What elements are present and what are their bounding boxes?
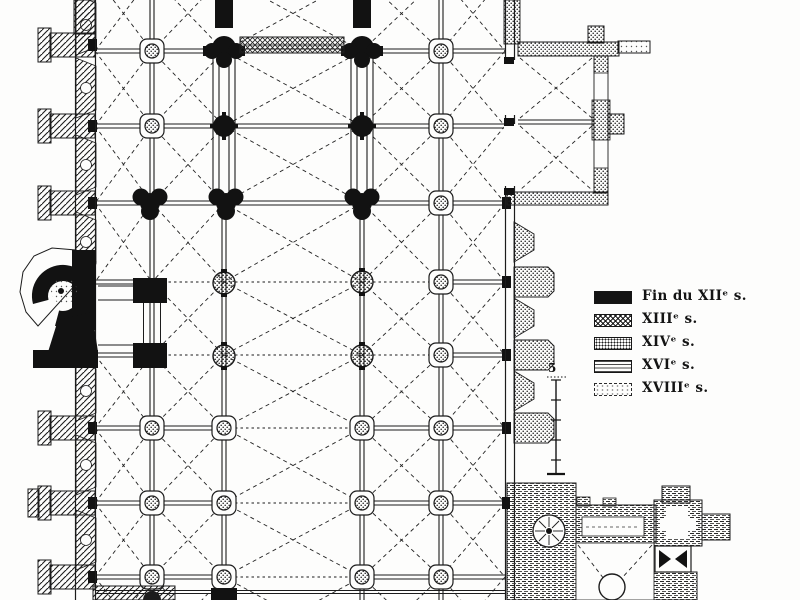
column-round [140, 39, 164, 63]
choir-screen [240, 37, 344, 53]
sacristy-complex [502, 483, 730, 600]
legend-swatch-end-12th-century [594, 291, 632, 304]
legend-swatch-14th-century [594, 337, 632, 350]
pier-trefoil [133, 189, 168, 221]
crossing-pier [203, 0, 245, 68]
turret-connector [48, 312, 98, 352]
legend-label: XVIᵉ s. [642, 359, 695, 372]
column-round [429, 343, 453, 367]
wall-respond [514, 298, 534, 338]
pier-square [133, 278, 167, 303]
column-round [350, 491, 374, 515]
right-buttress [514, 413, 554, 443]
column-round [429, 191, 453, 215]
chapel-north-arm [618, 41, 650, 53]
pier-square [133, 343, 167, 368]
turret-foot [33, 350, 98, 368]
column-hatched [351, 268, 373, 296]
column-round [212, 416, 236, 440]
column-hatched [351, 342, 373, 370]
side-chapel [504, 26, 650, 205]
legend-label: XVIIIᵉ s. [642, 382, 709, 395]
spiral-staircase [533, 515, 565, 547]
column-round [212, 491, 236, 515]
legend-label: XIIIᵉ s. [642, 313, 698, 326]
legend-swatch-13th-century [594, 314, 632, 327]
construction-period-legend: Fin du XIIᵉ s.XIIIᵉ s.XIVᵉ s.XVIᵉ s.XVII… [594, 291, 747, 406]
chapel-north-buttress [588, 26, 604, 43]
legend-label: XIVᵉ s. [642, 336, 695, 349]
right-wall-top-cap [504, 0, 520, 44]
chapel-south-wall [507, 192, 608, 205]
wall-respond [514, 371, 534, 411]
legend-item: XVIᵉ s. [594, 360, 747, 373]
column-round [212, 565, 236, 589]
column-round [429, 565, 453, 589]
column-round [429, 270, 453, 294]
legend-item: Fin du XIIᵉ s. [594, 291, 747, 304]
legend-item: XIIIᵉ s. [594, 314, 747, 327]
scanned-floor-plan-page: Fin du XIIᵉ s.XIIIᵉ s.XIVᵉ s.XVIᵉ s.XVII… [0, 0, 800, 600]
column-round [429, 114, 453, 138]
wall-respond [514, 222, 534, 262]
legend-swatch-16th-century [594, 360, 632, 373]
chapel-west-opening [504, 124, 516, 186]
sacristy-vaulted-room [576, 543, 654, 600]
scale-bar-label: 5 [548, 361, 556, 375]
column-hatched [213, 342, 235, 370]
pier-black-round [348, 112, 376, 140]
column-round [140, 491, 164, 515]
column-round [429, 416, 453, 440]
east-chapel-cross [654, 486, 730, 546]
column-round [350, 416, 374, 440]
column-round [140, 114, 164, 138]
sacristy-tower [653, 572, 697, 600]
column-round [429, 491, 453, 515]
column-round [429, 39, 453, 63]
right-buttress [514, 267, 554, 297]
legend-label: Fin du XIIᵉ s. [642, 290, 747, 303]
legend-item: XIVᵉ s. [594, 337, 747, 350]
column-round [140, 565, 164, 589]
bowtie-bay [655, 546, 691, 572]
pier-trefoil [209, 189, 244, 221]
left-wall-top-cap [74, 0, 95, 34]
crossing-pier [341, 0, 383, 68]
legend-item: XVIIIᵉ s. [594, 383, 747, 396]
legend-swatch-18th-century [594, 383, 632, 396]
column-hatched [213, 269, 235, 297]
column-round [350, 565, 374, 589]
column-round [140, 416, 164, 440]
chapel-east-buttress [608, 114, 624, 134]
chapel-west-opening [504, 60, 516, 115]
chapel-north-wall [518, 42, 619, 56]
turret-newel [58, 288, 64, 294]
